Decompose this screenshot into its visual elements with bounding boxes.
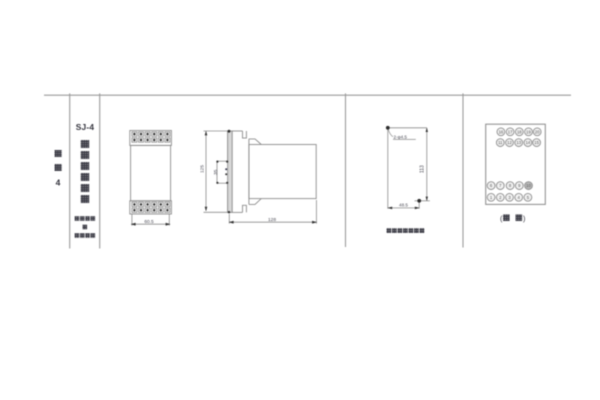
svg-text:16: 16 xyxy=(499,129,504,134)
svg-text:113: 113 xyxy=(419,165,425,173)
svg-text:13: 13 xyxy=(516,140,521,145)
svg-text:18: 18 xyxy=(517,129,522,134)
svg-text:20: 20 xyxy=(535,129,540,134)
svg-text:11: 11 xyxy=(498,140,503,145)
svg-text:12: 12 xyxy=(507,140,512,145)
svg-text:): ) xyxy=(523,214,525,223)
svg-text:10: 10 xyxy=(526,183,531,188)
svg-text:SJ-4: SJ-4 xyxy=(76,122,95,132)
svg-text:60.5: 60.5 xyxy=(144,219,154,225)
svg-text:14: 14 xyxy=(526,140,531,145)
svg-text:4: 4 xyxy=(56,178,61,188)
svg-text:48.5: 48.5 xyxy=(399,202,408,207)
svg-text:15: 15 xyxy=(534,140,539,145)
svg-text:125: 125 xyxy=(200,165,206,173)
svg-text:17: 17 xyxy=(508,129,513,134)
svg-text:128: 128 xyxy=(268,217,276,223)
svg-text:35: 35 xyxy=(213,169,219,175)
svg-text:2-φ4.5: 2-φ4.5 xyxy=(394,135,408,140)
svg-text:(: ( xyxy=(500,214,503,223)
svg-text:19: 19 xyxy=(526,129,531,134)
